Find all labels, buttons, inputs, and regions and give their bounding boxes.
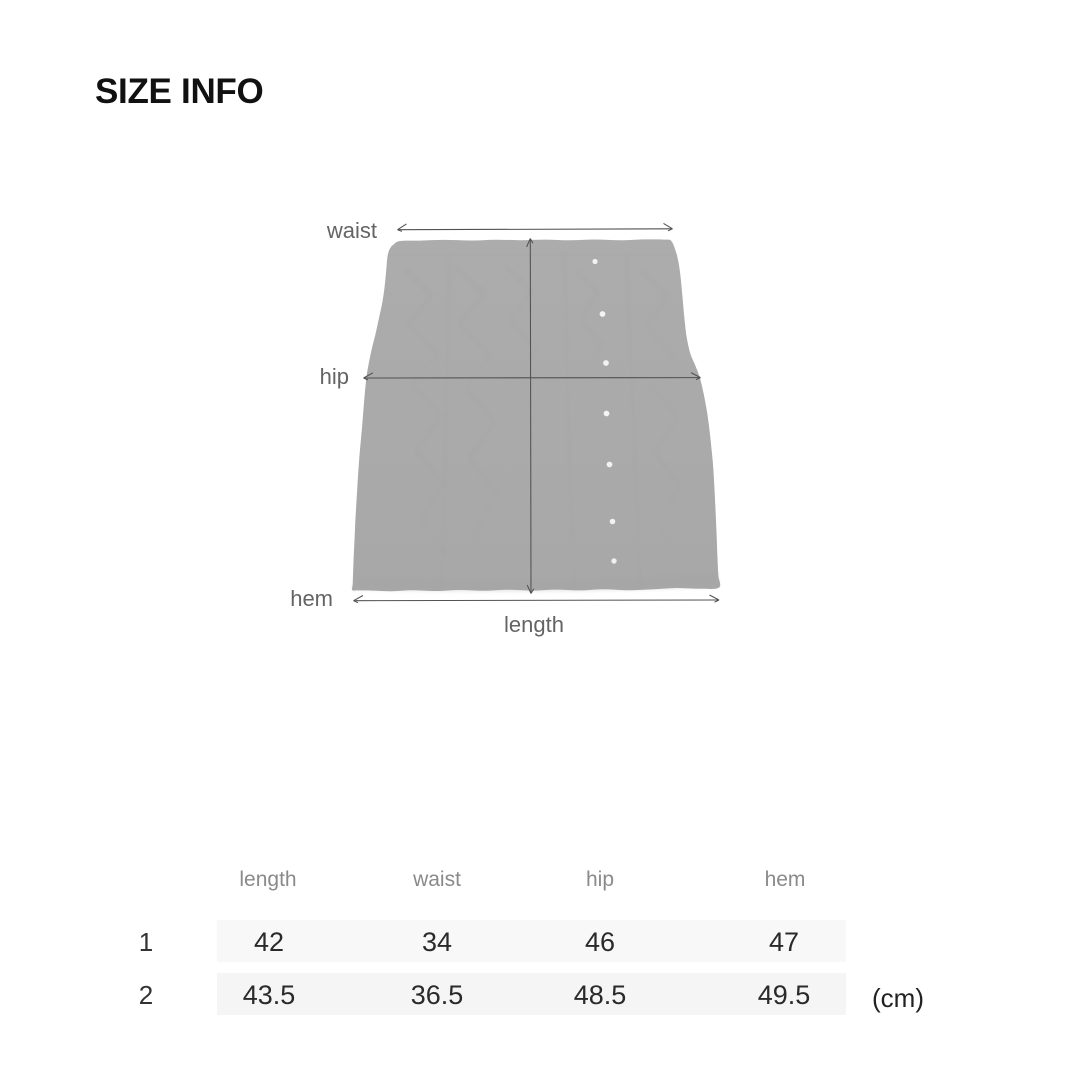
svg-text:hem: hem	[290, 586, 333, 611]
svg-text:length: length	[504, 612, 564, 637]
svg-text:waist: waist	[326, 218, 377, 243]
svg-text:hip: hip	[320, 364, 349, 389]
